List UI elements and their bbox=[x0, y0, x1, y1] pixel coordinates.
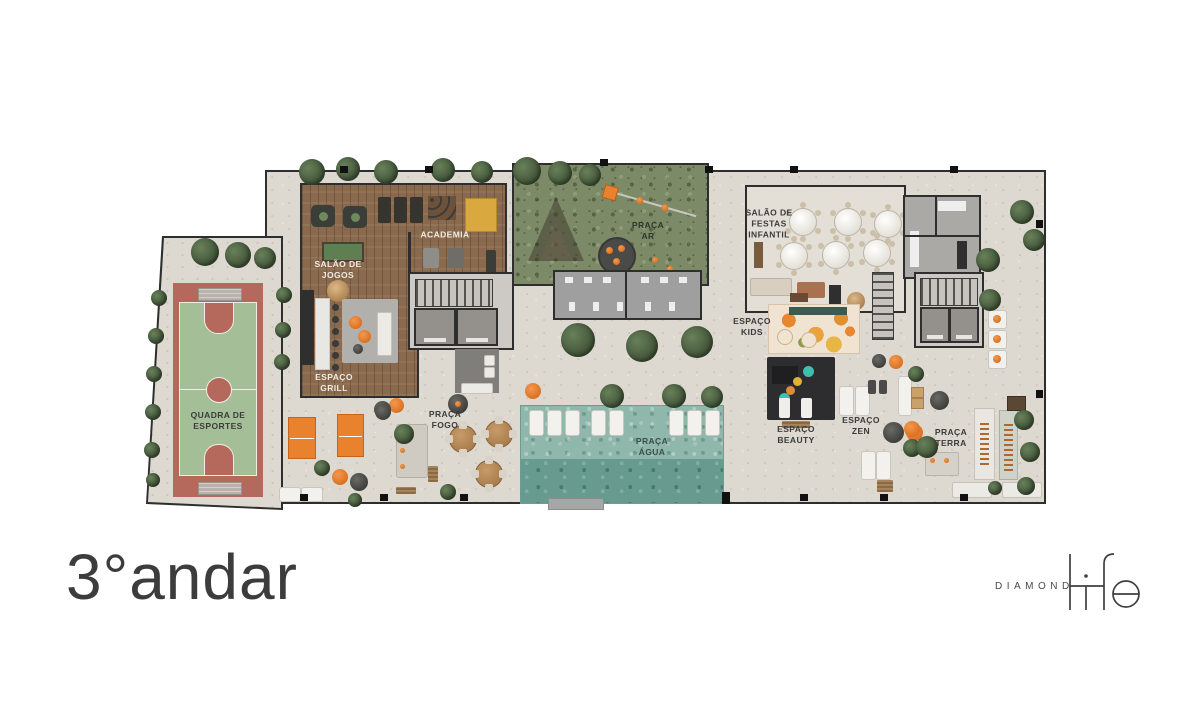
zipline bbox=[602, 184, 698, 222]
structural-column bbox=[960, 494, 968, 501]
gym-machine bbox=[423, 248, 439, 268]
zipline-tower bbox=[602, 184, 619, 201]
palm-tree bbox=[662, 384, 686, 408]
structural-column bbox=[600, 159, 608, 166]
structural-column bbox=[880, 494, 888, 501]
tree bbox=[299, 159, 325, 185]
sports-court bbox=[173, 283, 263, 497]
lobby-chair bbox=[484, 367, 495, 378]
beauty-pouf-teal bbox=[803, 366, 814, 377]
structural-column bbox=[460, 494, 468, 501]
lounger bbox=[988, 350, 1007, 369]
tree bbox=[394, 424, 414, 444]
pouf bbox=[350, 473, 368, 491]
planter-box bbox=[974, 408, 995, 480]
pool-lounger bbox=[705, 410, 720, 436]
tree bbox=[979, 289, 1001, 311]
lounger bbox=[279, 487, 301, 502]
zipline-seat bbox=[635, 196, 644, 205]
tree bbox=[1023, 229, 1045, 251]
basket bbox=[911, 387, 924, 398]
treadmill bbox=[394, 197, 407, 223]
structural-column bbox=[800, 494, 808, 501]
tree bbox=[374, 160, 398, 184]
label-salao-jogos: SALÃO DE JOGOS bbox=[314, 259, 361, 281]
wood-bench bbox=[396, 487, 416, 494]
herb-rows bbox=[1004, 421, 1013, 471]
kids-play-mat bbox=[768, 304, 860, 354]
shrub bbox=[348, 493, 362, 507]
zen-rug bbox=[883, 422, 904, 443]
shrub bbox=[908, 366, 924, 382]
treadmill bbox=[378, 197, 391, 223]
trampoline-pad bbox=[618, 245, 625, 252]
brand-logo-text: Life bbox=[985, 548, 986, 549]
shrub bbox=[145, 404, 161, 420]
gym-mat bbox=[465, 198, 497, 232]
sofa-cushion bbox=[930, 458, 935, 463]
party-sofa bbox=[750, 278, 792, 296]
party-table bbox=[874, 210, 902, 238]
party-table bbox=[834, 208, 862, 236]
shrub bbox=[314, 460, 330, 476]
beauty-pouf-orange bbox=[786, 386, 795, 395]
label-praca-fogo: PRAÇA FOGO bbox=[429, 409, 461, 431]
shrub bbox=[144, 442, 160, 458]
label-espaco-zen: ESPAÇO ZEN bbox=[842, 415, 880, 437]
court-key-top bbox=[204, 302, 234, 334]
sideboard bbox=[754, 242, 763, 268]
tree bbox=[976, 248, 1000, 272]
label-espaco-kids: ESPAÇO KIDS bbox=[733, 316, 771, 338]
structural-column bbox=[950, 166, 958, 173]
styling-station bbox=[779, 398, 790, 418]
beauty-pouf-yellow bbox=[793, 377, 802, 386]
room-divider bbox=[905, 235, 979, 237]
elevator bbox=[920, 307, 950, 343]
pouf bbox=[904, 421, 920, 437]
kids-child bbox=[777, 329, 793, 345]
floor-title: 3°andar bbox=[66, 540, 298, 614]
trampoline-pad bbox=[606, 247, 613, 254]
card-table-top bbox=[351, 213, 360, 222]
sofa-cushion bbox=[400, 448, 405, 453]
counter bbox=[938, 201, 966, 211]
bleacher-bottom bbox=[198, 482, 242, 495]
room-divider bbox=[935, 197, 937, 237]
restroom-fixture bbox=[569, 302, 575, 311]
party-table bbox=[822, 241, 850, 269]
label-espaco-beauty: ESPAÇO BEAUTY bbox=[777, 424, 815, 446]
pouf bbox=[332, 469, 348, 485]
praca-ar-lawn bbox=[512, 163, 709, 286]
staircase bbox=[920, 278, 978, 306]
floorplan-canvas: QUADRA DE ESPORTES SALÃO DE JOGOS ACADEM… bbox=[0, 0, 1200, 704]
grill-sofa bbox=[377, 312, 392, 356]
lounger bbox=[876, 451, 891, 480]
beauty-rug bbox=[767, 357, 835, 420]
bar-stools bbox=[332, 304, 339, 311]
weight-rack bbox=[428, 196, 456, 220]
shrub bbox=[276, 287, 292, 303]
sofa-cushion bbox=[400, 464, 405, 469]
shrub bbox=[148, 328, 164, 344]
label-praca-agua: PRAÇA ÁGUA bbox=[636, 436, 668, 458]
pool-lounger bbox=[669, 410, 684, 436]
pool-lounger bbox=[591, 410, 606, 436]
elevator-core-left bbox=[408, 272, 514, 350]
label-quadra-esportes: QUADRA DE ESPORTES bbox=[191, 410, 246, 432]
tree bbox=[254, 247, 276, 269]
label-salao-festas-infantil: SALÃO DE FESTAS INFANTIL bbox=[745, 207, 792, 240]
court-playing-field bbox=[179, 302, 257, 476]
zipline-seat bbox=[660, 203, 669, 212]
tree bbox=[1014, 410, 1034, 430]
structural-column bbox=[722, 492, 730, 504]
elevator-core-right bbox=[914, 272, 984, 348]
pool-lounger bbox=[529, 410, 544, 436]
party-table bbox=[863, 239, 891, 267]
tree bbox=[225, 242, 251, 268]
bleacher-top bbox=[198, 288, 242, 301]
kids-shelf bbox=[789, 307, 847, 315]
treadmill bbox=[410, 197, 423, 223]
zen-table bbox=[898, 376, 912, 416]
restrooms-block bbox=[553, 270, 702, 320]
structural-column bbox=[300, 494, 308, 501]
tree bbox=[1017, 477, 1035, 495]
kitchen-unit bbox=[957, 241, 967, 269]
brand-logo: DIAMOND Life bbox=[985, 548, 1145, 618]
tree bbox=[191, 238, 219, 266]
dining-table bbox=[485, 420, 513, 448]
dining-table bbox=[475, 460, 503, 488]
pool-lounger bbox=[547, 410, 562, 436]
structural-column bbox=[425, 166, 433, 173]
kids-bookshelf bbox=[790, 293, 808, 302]
tree bbox=[431, 158, 455, 182]
staircase bbox=[415, 279, 493, 307]
lobby-bench bbox=[461, 383, 493, 394]
label-praca-ar: PRAÇA AR bbox=[632, 220, 664, 242]
rattan-bench bbox=[877, 480, 893, 492]
styling-station bbox=[801, 398, 812, 418]
grill-armchair bbox=[358, 330, 371, 343]
service-stair bbox=[872, 272, 894, 340]
shrub bbox=[151, 290, 167, 306]
party-table bbox=[780, 242, 808, 270]
label-praca-terra: PRAÇA TERRA bbox=[935, 427, 967, 449]
gym-machine bbox=[448, 248, 464, 268]
lounger bbox=[861, 451, 876, 480]
tree bbox=[513, 157, 541, 185]
kitchen-counter bbox=[301, 290, 314, 365]
kids-child bbox=[801, 332, 817, 348]
ping-pong-table bbox=[337, 414, 364, 457]
pouf bbox=[375, 404, 391, 420]
pouf bbox=[930, 391, 949, 410]
lobby-chair bbox=[484, 355, 495, 366]
pouf bbox=[525, 383, 541, 399]
spin-bike bbox=[486, 250, 496, 274]
garden-bed bbox=[1007, 396, 1026, 411]
lounger bbox=[988, 330, 1007, 349]
basket bbox=[911, 398, 924, 409]
pool-lounger bbox=[609, 410, 624, 436]
label-academia: ACADEMIA bbox=[420, 229, 469, 240]
restroom-fixture bbox=[565, 277, 573, 283]
zipline-cable bbox=[604, 189, 697, 217]
tree bbox=[1020, 442, 1040, 462]
palm-tree bbox=[681, 326, 713, 358]
shrub bbox=[440, 484, 456, 500]
pool-step bbox=[548, 498, 604, 510]
label-espaco-grill: ESPAÇO GRILL bbox=[315, 372, 353, 394]
pouf bbox=[889, 355, 903, 369]
restroom-divider bbox=[625, 272, 627, 318]
grill-armchair bbox=[349, 316, 362, 329]
structural-column bbox=[790, 166, 798, 173]
shrub bbox=[274, 354, 290, 370]
structural-column bbox=[340, 166, 348, 173]
structural-column bbox=[1036, 390, 1043, 398]
ping-pong-table bbox=[288, 417, 316, 459]
palm-tree bbox=[600, 384, 624, 408]
elevator bbox=[456, 308, 498, 346]
elevator bbox=[414, 308, 456, 346]
party-table bbox=[789, 208, 817, 236]
sofa-cushion bbox=[944, 458, 949, 463]
pool bbox=[520, 405, 724, 504]
tree bbox=[1010, 200, 1034, 224]
pool-lounger bbox=[687, 410, 702, 436]
zen-machine bbox=[879, 380, 887, 394]
card-table-top bbox=[319, 212, 328, 221]
bar-counter bbox=[315, 298, 330, 370]
fire-pit-flame bbox=[455, 401, 461, 407]
palm-tree bbox=[701, 386, 723, 408]
life-logo-icon bbox=[1060, 550, 1144, 616]
shrub bbox=[988, 481, 1002, 495]
pouf bbox=[389, 398, 404, 413]
palm-tree bbox=[561, 323, 595, 357]
support-rooms bbox=[903, 195, 981, 279]
grill-table bbox=[353, 344, 363, 354]
garden-sofa bbox=[952, 482, 992, 498]
shrub bbox=[146, 473, 160, 487]
tree bbox=[579, 164, 601, 186]
court-key-bottom bbox=[204, 444, 234, 476]
wood-bench bbox=[428, 466, 438, 482]
shrub bbox=[275, 322, 291, 338]
structural-column bbox=[380, 494, 388, 501]
massage-table bbox=[839, 386, 854, 416]
lounger bbox=[988, 310, 1007, 329]
structural-column bbox=[1036, 220, 1043, 228]
pouf bbox=[872, 354, 886, 368]
tree bbox=[548, 161, 572, 185]
play-cone bbox=[652, 257, 658, 263]
pool-deep-end bbox=[521, 459, 723, 503]
shrub bbox=[146, 366, 162, 382]
structural-column bbox=[705, 166, 713, 173]
pool-lounger bbox=[565, 410, 580, 436]
tree bbox=[471, 161, 493, 183]
zen-machine bbox=[868, 380, 876, 394]
trampoline-pad bbox=[613, 258, 620, 265]
herb-rows bbox=[980, 423, 989, 465]
palm-tree bbox=[626, 330, 658, 362]
court-center-circle bbox=[206, 377, 232, 403]
elevator bbox=[949, 307, 979, 343]
